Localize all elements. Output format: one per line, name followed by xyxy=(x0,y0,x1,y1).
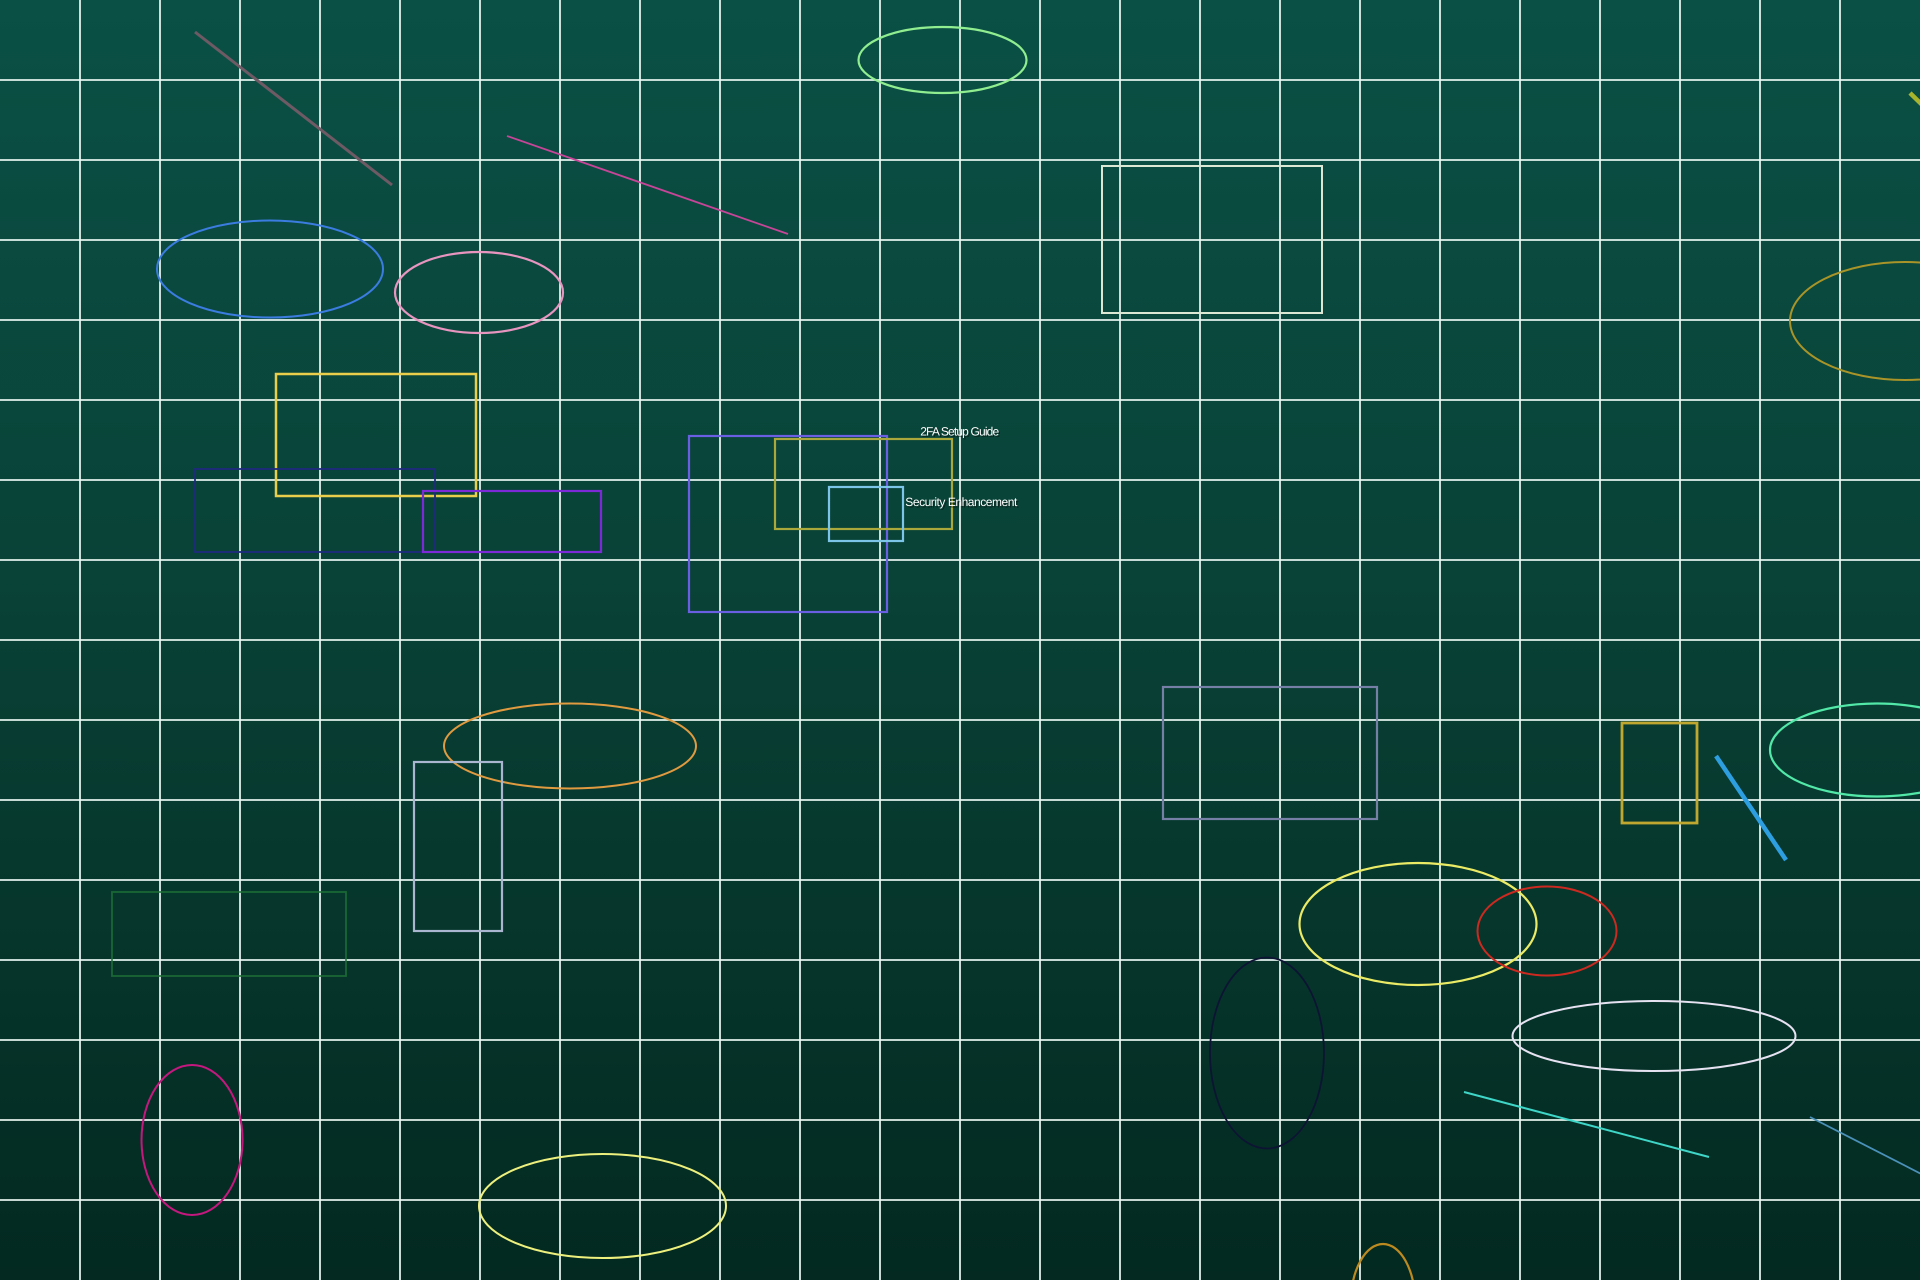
svg-text:Security Enhancement: Security Enhancement xyxy=(905,495,1018,509)
svg-text:2FA Setup Guide: 2FA Setup Guide xyxy=(920,425,999,439)
